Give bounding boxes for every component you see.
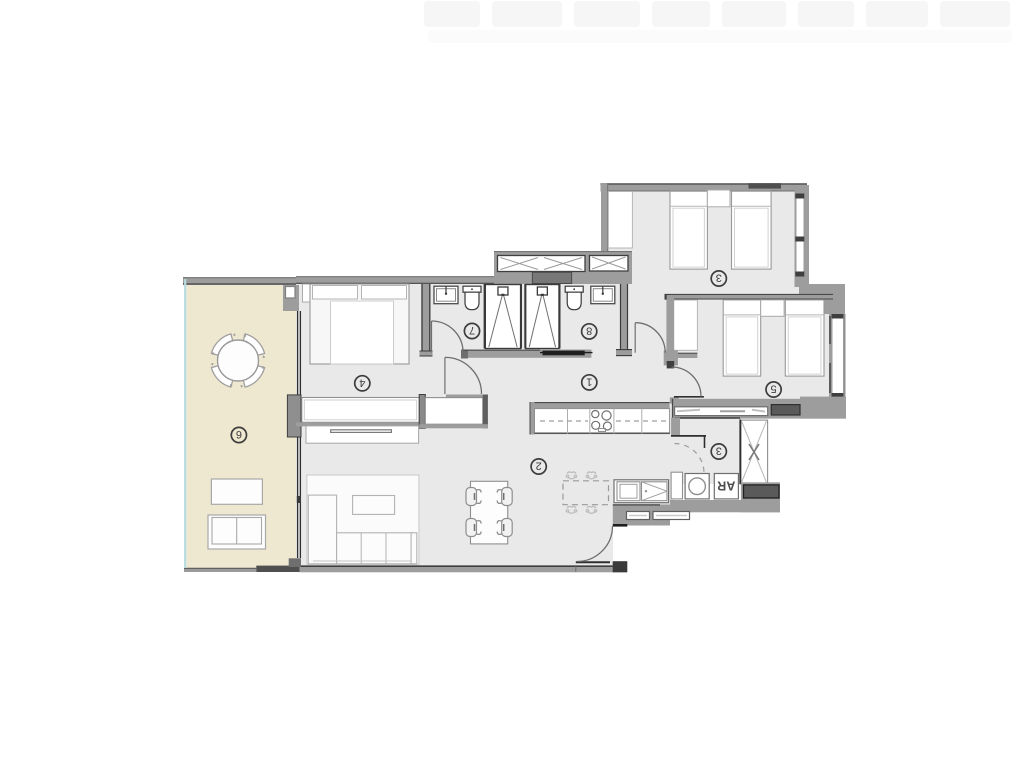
svg-text:1: 1 (586, 376, 592, 388)
svg-text:7: 7 (469, 324, 475, 336)
svg-text:AR: AR (717, 478, 735, 492)
svg-text:5: 5 (771, 383, 777, 395)
svg-text:4: 4 (359, 376, 365, 388)
svg-text:2: 2 (536, 460, 542, 472)
svg-text:8: 8 (586, 325, 592, 337)
svg-text:3: 3 (716, 445, 722, 457)
svg-text:6: 6 (236, 428, 242, 440)
svg-text:3: 3 (716, 272, 722, 284)
